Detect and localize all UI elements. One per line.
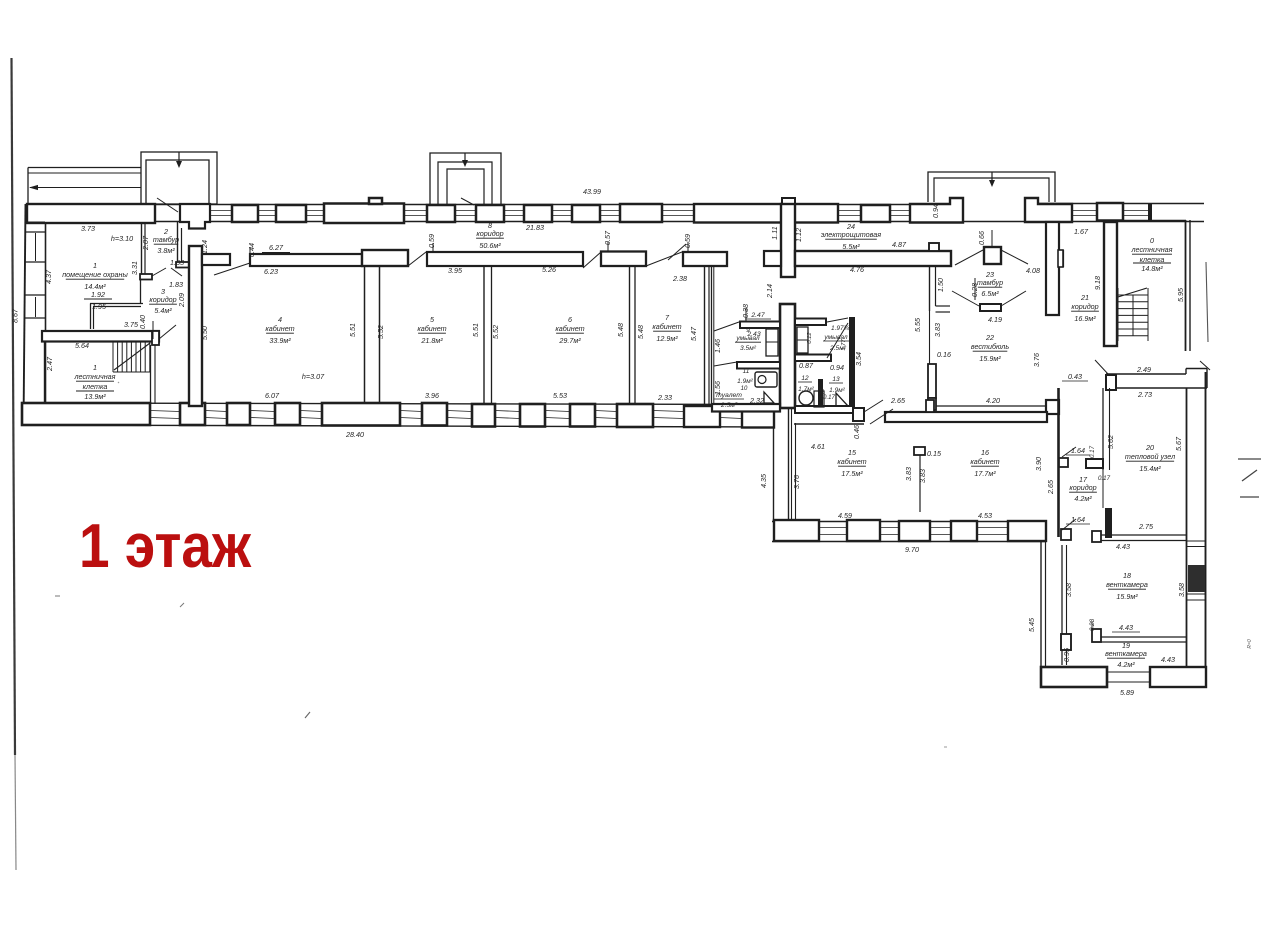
svg-text:кабинет: кабинет <box>970 457 999 466</box>
svg-text:0: 0 <box>1150 236 1154 245</box>
svg-text:4: 4 <box>278 315 282 324</box>
svg-text:0.16: 0.16 <box>937 350 951 359</box>
svg-text:3.8м²: 3.8м² <box>157 246 175 255</box>
svg-text:15: 15 <box>848 448 857 457</box>
svg-text:помещение охраны: помещение охраны <box>62 270 128 279</box>
svg-text:6: 6 <box>568 315 572 324</box>
svg-text:1.92: 1.92 <box>91 290 105 299</box>
svg-text:0.59: 0.59 <box>427 234 436 248</box>
svg-text:вестибюль: вестибюль <box>971 342 1009 351</box>
svg-text:коридор: коридор <box>1069 483 1096 492</box>
svg-text:3.95: 3.95 <box>448 266 463 275</box>
svg-text:1.77: 1.77 <box>841 339 847 351</box>
svg-text:9.18: 9.18 <box>1093 276 1102 290</box>
svg-text:8.67: 8.67 <box>11 308 20 323</box>
svg-text:33.9м²: 33.9м² <box>269 336 291 345</box>
svg-text:15.9м²: 15.9м² <box>1116 592 1138 601</box>
svg-text:5.52: 5.52 <box>376 325 385 339</box>
svg-text:0.28: 0.28 <box>1089 618 1096 631</box>
svg-text:венткамера: венткамера <box>1105 649 1147 658</box>
svg-text:4.20: 4.20 <box>986 396 1000 405</box>
svg-text:2.07: 2.07 <box>141 235 150 251</box>
svg-text:2.14: 2.14 <box>765 284 774 299</box>
svg-text:3.83: 3.83 <box>933 323 942 337</box>
svg-text:1.24: 1.24 <box>200 240 209 254</box>
svg-text:16: 16 <box>981 448 989 457</box>
svg-text:5.5м²: 5.5м² <box>842 242 860 251</box>
svg-text:3.75: 3.75 <box>124 320 139 329</box>
svg-text:0.43: 0.43 <box>1068 372 1082 381</box>
svg-text:туалет: туалет <box>716 392 742 399</box>
svg-text:5.50: 5.50 <box>200 326 209 340</box>
svg-text:22: 22 <box>985 333 994 342</box>
svg-text:1.9м²: 1.9м² <box>737 378 753 385</box>
svg-text:2.73: 2.73 <box>1137 390 1152 399</box>
svg-text:4.2м²: 4.2м² <box>1074 494 1092 503</box>
svg-text:2.43: 2.43 <box>746 331 760 338</box>
svg-text:4.08: 4.08 <box>1026 266 1040 275</box>
svg-text:4.43: 4.43 <box>1161 655 1175 664</box>
svg-text:1.64: 1.64 <box>1071 446 1085 455</box>
svg-text:тамбур: тамбур <box>977 278 1003 287</box>
svg-text:1: 1 <box>93 261 97 270</box>
svg-text:5.48: 5.48 <box>616 323 625 337</box>
svg-text:0.38: 0.38 <box>741 304 750 318</box>
svg-text:3.83: 3.83 <box>904 467 913 481</box>
svg-text:13.9м²: 13.9м² <box>84 392 106 401</box>
svg-text:1.83: 1.83 <box>169 280 183 289</box>
svg-text:5.47: 5.47 <box>689 326 698 341</box>
svg-text:0.94: 0.94 <box>931 204 940 218</box>
svg-text:кабинет: кабинет <box>555 324 584 333</box>
svg-text:0.15: 0.15 <box>927 449 942 458</box>
svg-text:0.59: 0.59 <box>683 234 692 248</box>
svg-text:5.45: 5.45 <box>1027 617 1036 632</box>
svg-text:электрощитовая: электрощитовая <box>821 230 881 239</box>
svg-text:0.66: 0.66 <box>977 231 986 245</box>
svg-text:кабинет: кабинет <box>837 457 866 466</box>
svg-text:4.19: 4.19 <box>988 315 1002 324</box>
svg-text:2.65: 2.65 <box>1046 479 1055 495</box>
svg-text:3.5м²: 3.5м² <box>740 345 757 352</box>
svg-text:6.07: 6.07 <box>265 391 280 400</box>
svg-text:4.61: 4.61 <box>811 442 825 451</box>
svg-text:28.40: 28.40 <box>345 430 364 439</box>
svg-text:0.44: 0.44 <box>247 243 256 257</box>
svg-text:1.46: 1.46 <box>713 339 722 353</box>
svg-text:17.5м²: 17.5м² <box>841 469 863 478</box>
svg-text:1.67: 1.67 <box>1074 227 1089 236</box>
svg-text:лестничная: лестничная <box>1130 245 1172 254</box>
svg-text:5.4м²: 5.4м² <box>154 306 172 315</box>
svg-text:кабинет: кабинет <box>417 324 446 333</box>
svg-text:3.58: 3.58 <box>1177 583 1186 597</box>
svg-text:кабинет: кабинет <box>652 322 681 331</box>
svg-text:4.43: 4.43 <box>1116 542 1130 551</box>
svg-text:0.28: 0.28 <box>970 283 979 297</box>
svg-text:1.95: 1.95 <box>92 302 107 311</box>
svg-text:5.52: 5.52 <box>491 325 500 339</box>
svg-text:1.12: 1.12 <box>794 228 803 242</box>
svg-text:2.38: 2.38 <box>672 274 687 283</box>
svg-text:0.40: 0.40 <box>138 315 147 329</box>
svg-text:1.64: 1.64 <box>1071 515 1085 524</box>
svg-text:h=3.10: h=3.10 <box>111 234 133 243</box>
svg-text:12: 12 <box>801 375 809 382</box>
svg-text:11: 11 <box>743 368 750 375</box>
svg-text:20: 20 <box>1145 443 1154 452</box>
svg-text:4.87: 4.87 <box>892 240 907 249</box>
svg-text:3.96: 3.96 <box>425 391 439 400</box>
svg-text:21.8м²: 21.8м² <box>420 336 443 345</box>
svg-text:венткамера: венткамера <box>1106 580 1148 589</box>
svg-text:коридор: коридор <box>1071 302 1098 311</box>
svg-text:0.15: 0.15 <box>820 388 826 400</box>
svg-text:2.32: 2.32 <box>749 396 764 405</box>
svg-text:2.5м²: 2.5м² <box>720 402 738 409</box>
svg-text:5.53: 5.53 <box>553 391 567 400</box>
svg-text:12.9м²: 12.9м² <box>656 334 678 343</box>
svg-text:2.65: 2.65 <box>890 396 906 405</box>
svg-text:2.09: 2.09 <box>177 293 186 308</box>
svg-text:14.8м²: 14.8м² <box>1141 264 1163 273</box>
svg-text:5.95: 5.95 <box>1176 287 1185 302</box>
svg-text:5.51: 5.51 <box>348 323 357 337</box>
svg-text:3.73: 3.73 <box>81 224 95 233</box>
svg-text:0.95: 0.95 <box>1062 647 1071 662</box>
svg-text:R=0: R=0 <box>1247 639 1253 649</box>
svg-text:4.35: 4.35 <box>759 473 768 488</box>
svg-text:1.7м²: 1.7м² <box>798 386 814 393</box>
svg-text:13: 13 <box>832 376 840 383</box>
svg-text:коридор: коридор <box>149 295 176 304</box>
svg-text:5.48: 5.48 <box>636 325 645 339</box>
svg-text:6.23: 6.23 <box>264 267 278 276</box>
svg-text:43.99: 43.99 <box>583 187 601 196</box>
svg-text:3.31: 3.31 <box>130 261 139 275</box>
svg-text:2.49: 2.49 <box>1136 365 1151 374</box>
svg-text:3.76: 3.76 <box>1032 353 1041 367</box>
svg-text:5.62: 5.62 <box>1106 435 1115 449</box>
svg-text:5.64: 5.64 <box>75 341 89 350</box>
svg-text:1.11: 1.11 <box>770 226 779 239</box>
svg-text:1 этаж: 1 этаж <box>79 512 252 581</box>
svg-text:коридор: коридор <box>476 229 503 238</box>
svg-text:5.26: 5.26 <box>542 265 556 274</box>
svg-text:17.7м²: 17.7м² <box>974 469 996 478</box>
svg-text:5.51: 5.51 <box>471 323 480 337</box>
svg-text:1.97¼: 1.97¼ <box>831 325 850 332</box>
svg-text:лестничная: лестничная <box>73 372 115 381</box>
svg-text:29.7м²: 29.7м² <box>558 336 581 345</box>
svg-text:0.17: 0.17 <box>1098 475 1111 482</box>
svg-text:4.37: 4.37 <box>44 269 53 284</box>
svg-text:кабинет: кабинет <box>265 324 294 333</box>
svg-text:тамбур: тамбур <box>153 235 179 244</box>
svg-text:2.75: 2.75 <box>1138 522 1154 531</box>
svg-text:h=3.07: h=3.07 <box>302 372 325 381</box>
svg-text:2.47: 2.47 <box>750 312 764 319</box>
svg-text:2.47: 2.47 <box>45 356 54 372</box>
svg-text:0.94: 0.94 <box>830 363 844 372</box>
svg-text:50.6м²: 50.6м² <box>479 241 501 250</box>
svg-text:4.2м²: 4.2м² <box>1117 660 1135 669</box>
svg-text:6.5м²: 6.5м² <box>981 289 999 298</box>
svg-text:5.89: 5.89 <box>1120 688 1134 697</box>
svg-text:15.9м²: 15.9м² <box>979 354 1001 363</box>
svg-text:1.9м²: 1.9м² <box>829 387 845 394</box>
svg-text:1.50: 1.50 <box>936 278 945 292</box>
svg-text:15.4м²: 15.4м² <box>1139 464 1161 473</box>
svg-text:0.46: 0.46 <box>852 425 861 439</box>
svg-text:5.55: 5.55 <box>913 317 922 332</box>
svg-text:4.53: 4.53 <box>978 511 992 520</box>
svg-text:3.58: 3.58 <box>1064 583 1073 597</box>
svg-text:0.12: 0.12 <box>807 332 813 344</box>
svg-text:0.87: 0.87 <box>799 361 814 370</box>
svg-text:0.17: 0.17 <box>1089 445 1096 458</box>
svg-text:0.57: 0.57 <box>603 230 612 245</box>
svg-text:1: 1 <box>93 363 97 372</box>
svg-text:3.90: 3.90 <box>1034 457 1043 471</box>
svg-text:4.59: 4.59 <box>838 511 852 520</box>
svg-text:6.27: 6.27 <box>269 243 284 252</box>
svg-text:клетка: клетка <box>83 382 108 391</box>
svg-text:21: 21 <box>1080 293 1089 302</box>
svg-text:1.83: 1.83 <box>170 258 184 267</box>
svg-text:5.67: 5.67 <box>1174 436 1183 451</box>
svg-text:4.43: 4.43 <box>1119 623 1133 632</box>
svg-text:21.83: 21.83 <box>525 223 544 232</box>
svg-text:4.76: 4.76 <box>850 265 864 274</box>
svg-text:3.54: 3.54 <box>854 352 863 366</box>
svg-text:тепловой узел: тепловой узел <box>1125 452 1175 461</box>
svg-text:2.33: 2.33 <box>657 393 672 402</box>
svg-text:3.83: 3.83 <box>918 469 927 483</box>
svg-text:3.76: 3.76 <box>792 475 801 489</box>
svg-text:9.70: 9.70 <box>905 545 919 554</box>
svg-text:16.9м²: 16.9м² <box>1074 314 1096 323</box>
svg-text:18: 18 <box>1123 571 1131 580</box>
